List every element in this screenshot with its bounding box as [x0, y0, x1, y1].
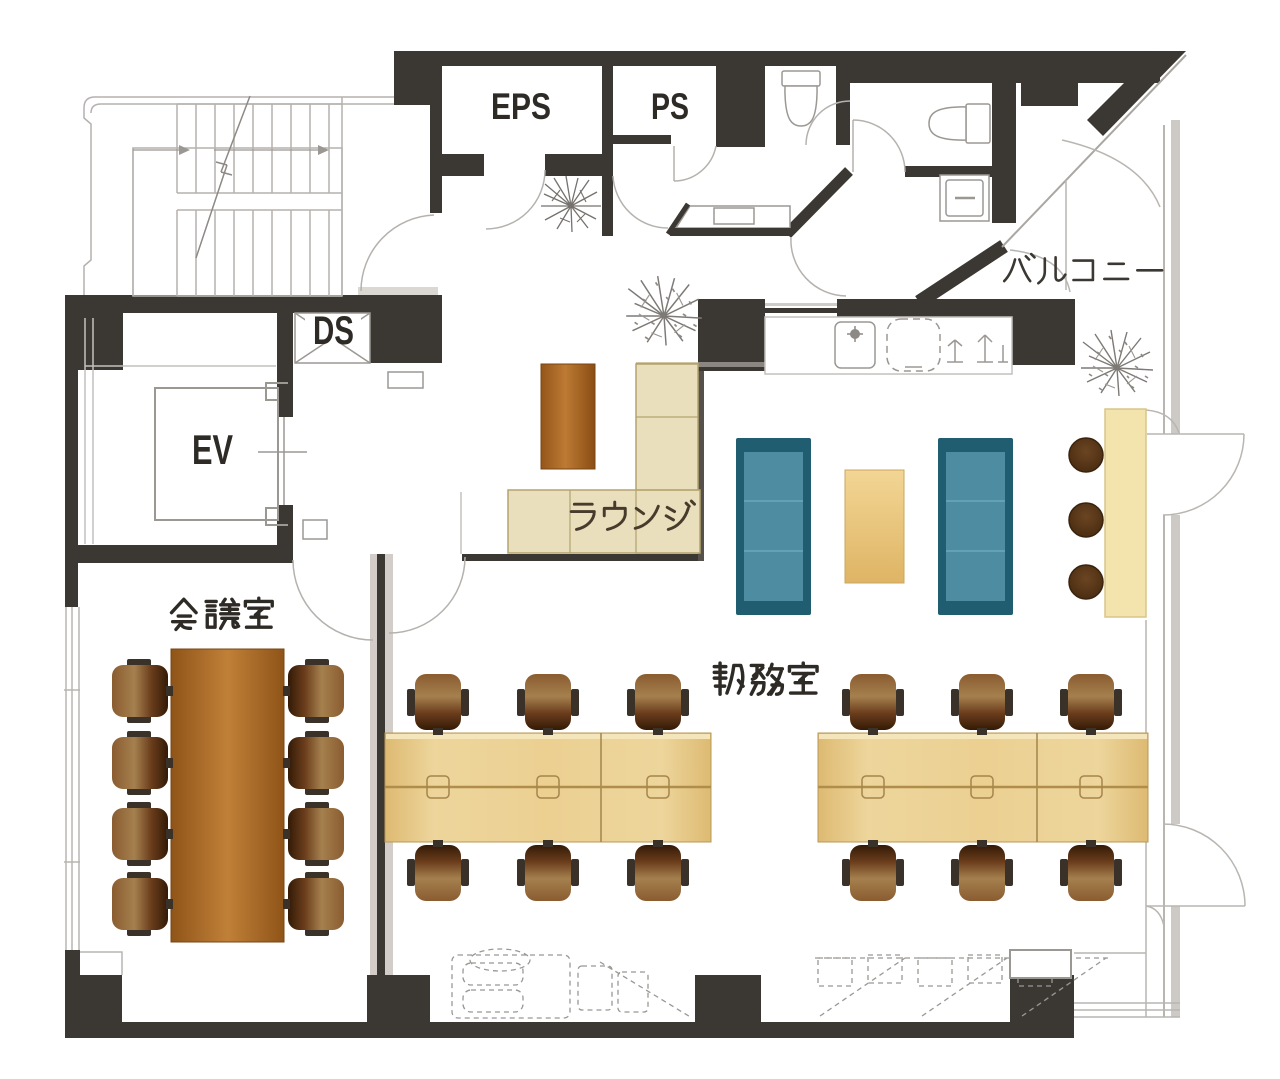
svg-text:DS: DS [313, 309, 354, 353]
svg-text:EV: EV [192, 426, 233, 473]
svg-text:PS: PS [651, 86, 689, 127]
svg-text:EPS: EPS [491, 86, 551, 127]
